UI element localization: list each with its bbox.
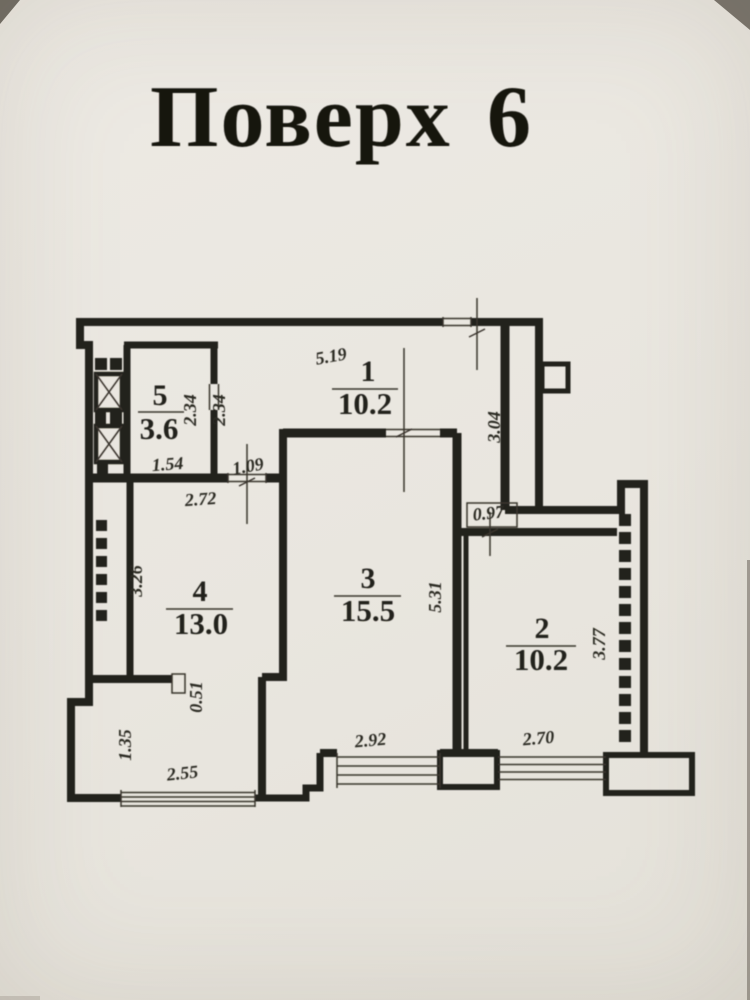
scan-corner-mark <box>714 0 750 30</box>
dim-room1-height: 2.34 <box>209 394 229 427</box>
lobby-window <box>121 790 255 807</box>
hatch-square <box>619 658 631 670</box>
hatch-square <box>619 622 631 634</box>
hatch-square <box>619 676 631 688</box>
dim-room4-left: 3.26 <box>126 565 146 598</box>
scanned-floor-plan-page: Поверх 6 <box>0 0 750 1000</box>
dim-room4-width: 2.72 <box>183 488 217 510</box>
vent-shaft-cross-icon <box>96 426 122 462</box>
hatched-wall-room2-right <box>619 514 631 742</box>
pilaster <box>542 364 568 391</box>
wall-fill-square <box>97 463 108 476</box>
hatch-square <box>96 556 107 567</box>
dim-room5-height: 2.34 <box>180 394 200 427</box>
scan-edge-line <box>0 996 40 1000</box>
wall-fill-square <box>110 412 122 424</box>
room3-window <box>337 753 440 788</box>
dim-room2-window: 2.70 <box>521 727 555 750</box>
dim-room2-door: 0.97 <box>472 501 506 524</box>
floor-title-word: Поверх <box>150 69 452 166</box>
dim-lobby: 1.35 <box>115 729 135 761</box>
room-5-area: 3.6 <box>140 411 179 446</box>
room2-window <box>498 757 606 780</box>
bottom-right-block <box>606 755 692 793</box>
floor-plan-drawing: Поверх 6 <box>0 0 750 1000</box>
window-pillar <box>440 753 497 787</box>
vent-shaft-cross-icon <box>96 374 122 410</box>
hatch-square <box>96 538 107 549</box>
room-4-number: 4 <box>193 575 208 608</box>
hatch-square <box>96 520 107 531</box>
top-wall-window <box>443 317 471 327</box>
room-1-area: 10.2 <box>338 386 392 421</box>
dim-room3-right: 5.31 <box>425 581 445 613</box>
hatch-square <box>619 550 631 562</box>
room-labels: 1 10.2 5 3.6 4 13.0 3 15.5 2 10.2 <box>138 355 576 677</box>
dim-room2-right: 3.77 <box>589 627 609 661</box>
room-3-area: 15.5 <box>341 593 395 628</box>
hatch-square <box>619 640 631 652</box>
hatch-square <box>619 514 631 526</box>
dim-room5-width: 1.54 <box>151 453 184 475</box>
room-3-number: 3 <box>361 562 376 595</box>
room-1-number: 1 <box>361 355 376 388</box>
scan-corner-mark <box>0 0 20 24</box>
hatch-square <box>619 568 631 580</box>
room3-left-wall <box>262 429 287 798</box>
hatch-square <box>96 610 107 621</box>
hatch-square <box>96 574 107 585</box>
room3-top-opening <box>386 430 440 437</box>
floor-title: Поверх 6 <box>150 69 533 166</box>
hatch-square <box>619 586 631 598</box>
floor-title-number: 6 <box>487 69 533 166</box>
hatch-square <box>96 592 107 603</box>
room-5-number: 5 <box>153 379 168 412</box>
dim-corridor-right: 3.04 <box>484 411 504 444</box>
hatch-square <box>619 730 631 742</box>
hatch-square <box>619 604 631 616</box>
door-jamb-box <box>172 674 185 693</box>
wall-fill-square <box>95 358 107 370</box>
dim-step: 0.51 <box>186 681 206 713</box>
hatch-square <box>619 532 631 544</box>
vent-shafts <box>95 358 122 476</box>
wall-fill-square <box>95 412 106 424</box>
dim-room3-window: 2.92 <box>353 729 387 752</box>
dim-lobby-window: 2.55 <box>165 761 199 784</box>
room-2-area: 10.2 <box>514 642 568 677</box>
hatched-wall-left <box>96 520 107 621</box>
room-4-area: 13.0 <box>174 606 228 641</box>
dim-room1-width: 5.19 <box>314 344 348 369</box>
wall-fill-square <box>110 358 122 370</box>
hatch-square <box>619 712 631 724</box>
room-2-number: 2 <box>535 612 550 645</box>
hatch-square <box>619 694 631 706</box>
